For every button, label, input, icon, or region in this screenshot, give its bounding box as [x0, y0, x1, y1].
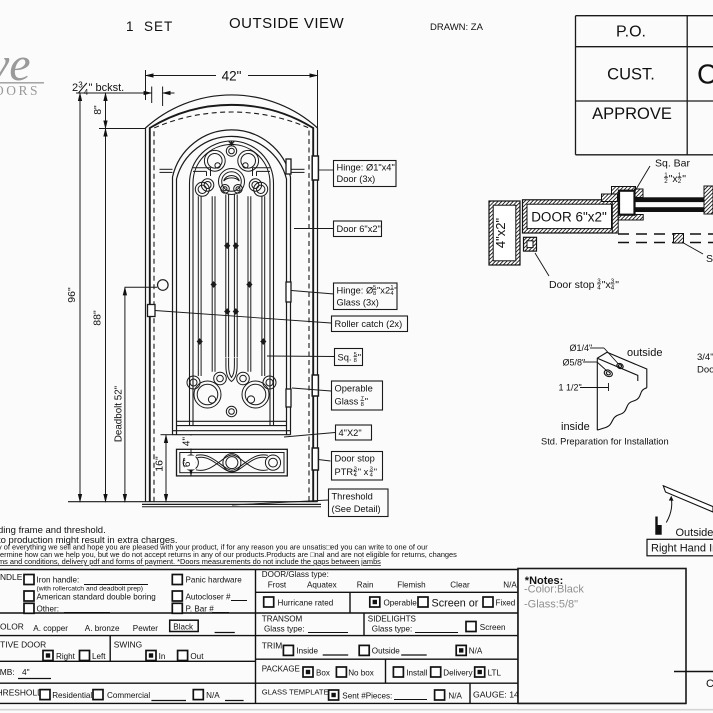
svg-text:CUST.: CUST. — [607, 66, 655, 84]
svg-text:N/A: N/A — [503, 581, 517, 590]
svg-text:Out: Out — [190, 652, 204, 661]
svg-text:Glass (3x): Glass (3x) — [337, 298, 379, 308]
svg-text:4"X2": 4"X2" — [339, 428, 362, 438]
svg-text:": " — [394, 286, 397, 296]
svg-text:Iron handle:: Iron handle: — [37, 576, 80, 585]
svg-text:Commercial: Commercial — [107, 691, 150, 700]
svg-text:THRESHOLD: THRESHOLD — [0, 688, 43, 698]
svg-text:COLOR: COLOR — [0, 622, 24, 632]
svg-text:C: C — [697, 59, 713, 90]
svg-text:DOOR 6"x2": DOOR 6"x2" — [531, 210, 607, 225]
svg-text:OUTSIDE VIEW: OUTSIDE VIEW — [229, 15, 345, 32]
svg-text:APPROVE: APPROVE — [592, 105, 672, 123]
svg-text:Ø5/8": Ø5/8" — [563, 358, 586, 368]
svg-text:Black: Black — [173, 623, 194, 632]
svg-text:Install: Install — [406, 668, 427, 677]
svg-text:ms and conditions, delivery pd: ms and conditions, delivery pdf and form… — [0, 557, 381, 566]
svg-text:Sq. Bar: Sq. Bar — [655, 158, 691, 170]
svg-text:Flemish: Flemish — [397, 581, 425, 590]
svg-text:(See Detail): (See Detail) — [332, 504, 381, 514]
svg-text:Door (3x): Door (3x) — [337, 174, 376, 184]
svg-text:1 SET: 1 SET — [126, 19, 173, 34]
svg-text:"x2: "x2 — [377, 286, 390, 296]
svg-text:Box: Box — [316, 668, 330, 677]
svg-text:N/A: N/A — [206, 691, 220, 700]
svg-text:": " — [365, 397, 368, 407]
svg-text:-Color:Black: -Color:Black — [524, 584, 584, 596]
svg-text:TRANSOM: TRANSOM — [262, 615, 303, 624]
svg-text:8: 8 — [361, 402, 364, 408]
svg-text:88": 88" — [92, 310, 104, 326]
svg-text:HANDLE: HANDLE — [0, 572, 23, 582]
svg-text:Sc: Sc — [706, 253, 713, 265]
svg-text:Delivery: Delivery — [443, 668, 473, 677]
svg-text:Ø1/4": Ø1/4" — [570, 343, 593, 353]
svg-text:8: 8 — [373, 291, 376, 297]
svg-text:SIDELIGHTS: SIDELIGHTS — [368, 615, 417, 624]
svg-text:Doo: Doo — [697, 365, 713, 376]
svg-text:American standard double borin: American standard double boring — [37, 592, 156, 601]
svg-text:Operable: Operable — [335, 384, 373, 394]
svg-text:Hinge: Ø1"x4": Hinge: Ø1"x4" — [337, 163, 395, 173]
svg-text:" x: " x — [358, 467, 369, 477]
svg-text:Operable: Operable — [384, 598, 418, 607]
svg-text:-Glass:5/8": -Glass:5/8" — [524, 599, 578, 611]
svg-text:PTR:: PTR: — [335, 467, 356, 477]
svg-text:Door stop: Door stop — [549, 279, 595, 291]
svg-text:2: 2 — [664, 178, 668, 185]
svg-text:PACKAGE: PACKAGE — [262, 665, 300, 674]
svg-text:N/A: N/A — [469, 647, 483, 656]
svg-text:96": 96" — [66, 287, 78, 303]
svg-text:": " — [682, 173, 686, 185]
svg-text:P.O.: P.O. — [616, 24, 646, 41]
svg-text:Left: Left — [92, 652, 106, 661]
svg-text:Autocloser #: Autocloser # — [186, 592, 231, 601]
svg-text:inside: inside — [561, 421, 590, 433]
svg-text:Glass type:: Glass type: — [264, 624, 305, 633]
svg-text:Clear: Clear — [450, 581, 470, 590]
svg-text:4: 4 — [611, 284, 615, 291]
svg-text:Sent #Pieces:: Sent #Pieces: — [342, 691, 392, 700]
svg-text:Inside: Inside — [296, 647, 318, 656]
svg-text:Fixed: Fixed — [496, 598, 516, 607]
svg-text:LTL: LTL — [488, 668, 502, 677]
svg-text:8": 8" — [92, 105, 104, 115]
svg-text:JAMB:: JAMB: — [0, 667, 15, 677]
svg-text:": " — [615, 279, 619, 291]
svg-text:4": 4" — [182, 437, 193, 447]
svg-text:": " — [374, 467, 377, 477]
svg-text:Outside: Outside — [372, 647, 400, 656]
svg-text:Panic hardware: Panic hardware — [186, 576, 243, 585]
svg-text:" bckst.: " bckst. — [89, 82, 125, 94]
svg-text:Hurricane rated: Hurricane rated — [278, 598, 334, 607]
svg-text:Roller catch (2x): Roller catch (2x) — [335, 319, 403, 329]
svg-text:N/A: N/A — [448, 691, 462, 700]
svg-text:": " — [358, 353, 361, 363]
svg-text:Frost: Frost — [268, 581, 287, 590]
svg-text:Outside: Outside — [676, 527, 713, 539]
svg-text:TRIM: TRIM — [262, 641, 282, 651]
svg-text:4: 4 — [597, 284, 601, 291]
svg-text:3/4": 3/4" — [697, 352, 713, 363]
svg-text:Glass: Glass — [335, 397, 359, 407]
svg-text:DOOR/Glass type:: DOOR/Glass type: — [262, 570, 329, 579]
svg-text:16": 16" — [154, 456, 166, 472]
svg-text:Rain: Rain — [357, 581, 374, 590]
svg-text:8: 8 — [354, 358, 357, 364]
svg-text:C: C — [706, 678, 713, 690]
svg-text:Aquatex: Aquatex — [307, 581, 337, 590]
svg-text:GAUGE: 14: GAUGE: 14 — [473, 690, 519, 700]
svg-text:Deadbolt 52": Deadbolt 52" — [114, 385, 125, 442]
svg-text:Door 6"x2": Door 6"x2" — [337, 224, 381, 234]
svg-text:2: 2 — [678, 178, 682, 185]
svg-text:No box: No box — [348, 668, 374, 677]
svg-text:Screen: Screen — [480, 623, 506, 632]
svg-text:Screen or: Screen or — [432, 597, 479, 609]
svg-text:6": 6" — [182, 458, 193, 468]
svg-text:1 1/2": 1 1/2" — [559, 383, 582, 393]
svg-text:Std. Preparation for Installat: Std. Preparation for Installation — [541, 437, 669, 447]
svg-text:Pewter: Pewter — [133, 624, 158, 633]
svg-text:SWING: SWING — [114, 640, 142, 650]
svg-text:Residential: Residential — [52, 691, 92, 700]
svg-text:4"x2": 4"x2" — [493, 218, 508, 249]
svg-text:Right: Right — [56, 652, 76, 661]
svg-text:A. copper: A. copper — [33, 624, 68, 633]
svg-text:42": 42" — [222, 69, 242, 84]
svg-text:A. bronze: A. bronze — [85, 624, 120, 633]
svg-text:Hinge: Ø: Hinge: Ø — [337, 286, 374, 296]
svg-text:Right Hand In-: Right Hand In- — [651, 543, 713, 555]
svg-text:GLASS TEMPLATE: GLASS TEMPLATE — [262, 688, 329, 697]
svg-text:Door stop: Door stop — [335, 454, 375, 464]
svg-text:DRAWN: ZA: DRAWN: ZA — [430, 22, 484, 33]
svg-text:2: 2 — [72, 82, 78, 94]
svg-text:outside: outside — [627, 347, 662, 359]
svg-text:Glass type:: Glass type: — [372, 624, 413, 633]
svg-text:P. Bar #: P. Bar # — [186, 605, 215, 614]
svg-text:Sq.: Sq. — [338, 353, 352, 363]
svg-text:ACTIVE DOOR: ACTIVE DOOR — [0, 640, 46, 650]
svg-text:Other:: Other: — [37, 605, 60, 614]
svg-text:Threshold: Threshold — [332, 492, 373, 502]
svg-text:OORS: OORS — [0, 83, 40, 98]
svg-text:4": 4" — [22, 667, 30, 677]
svg-text:In: In — [159, 652, 166, 661]
